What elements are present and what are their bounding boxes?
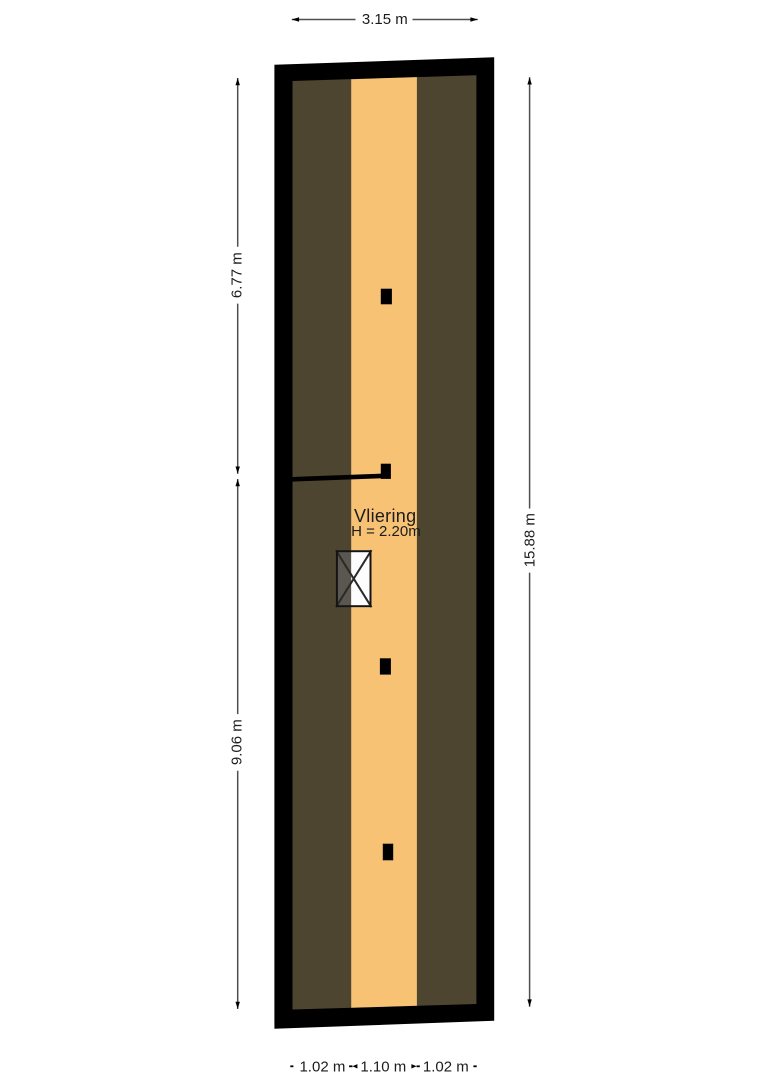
svg-text:H = 2.20m: H = 2.20m (351, 523, 421, 540)
svg-text:1.10 m: 1.10 m (360, 1058, 406, 1075)
svg-text:6.77 m: 6.77 m (229, 252, 246, 298)
svg-text:9.06 m: 9.06 m (228, 719, 245, 765)
svg-text:1.02 m: 1.02 m (423, 1058, 469, 1075)
svg-text:3.15 m: 3.15 m (362, 11, 408, 28)
svg-text:15.88 m: 15.88 m (522, 513, 539, 567)
svg-text:1.02 m: 1.02 m (299, 1058, 345, 1075)
